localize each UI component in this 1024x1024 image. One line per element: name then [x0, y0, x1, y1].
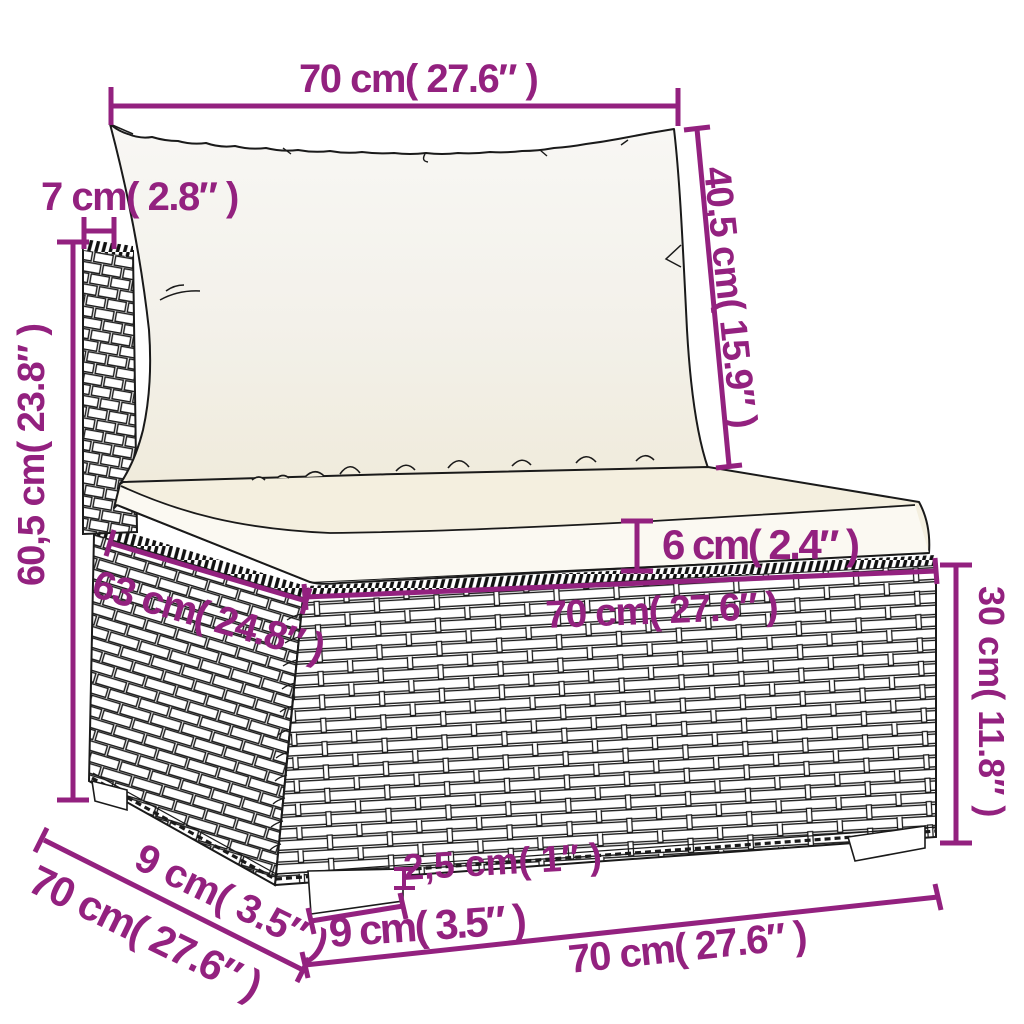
svg-text:70 cm( 27.6″ ): 70 cm( 27.6″ ) [299, 57, 537, 101]
svg-text:6 cm( 2.4″ ): 6 cm( 2.4″ ) [662, 521, 858, 568]
svg-text:7 cm( 2.8″ ): 7 cm( 2.8″ ) [41, 175, 238, 219]
svg-text:30 cm( 11.8″ ): 30 cm( 11.8″ ) [971, 586, 1012, 817]
svg-text:60,5 cm( 23.8″ ): 60,5 cm( 23.8″ ) [11, 324, 53, 586]
